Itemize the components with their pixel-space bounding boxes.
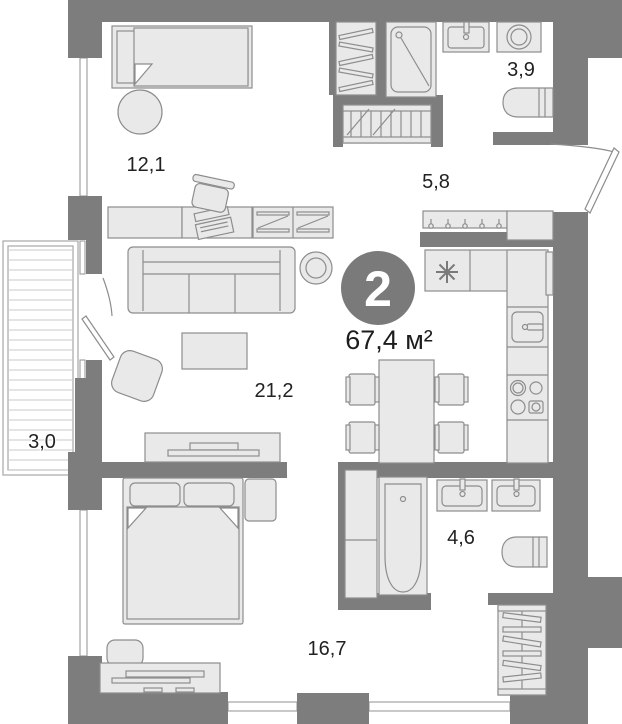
bedroom-chair [107, 640, 143, 666]
shower-cabin [386, 22, 436, 97]
balcony-door-arc [103, 278, 112, 316]
faucet-icon [460, 479, 465, 490]
pillow [130, 483, 180, 506]
room-label-bedroom-bottom: 16,7 [308, 638, 347, 660]
faucet-icon [514, 479, 519, 490]
wall-segment [546, 605, 588, 693]
wall-segment [86, 462, 287, 478]
wall-segment [75, 378, 102, 452]
wall-segment [553, 22, 588, 140]
wardrobe-shelves [253, 207, 333, 238]
dining-chair [435, 374, 468, 405]
double-bed [123, 478, 243, 624]
wall-segment [86, 240, 102, 274]
faucet-icon [464, 22, 469, 33]
wall-segment [431, 105, 443, 147]
window-bottom-right [369, 702, 510, 711]
dining-chair [435, 422, 468, 453]
dresser [100, 663, 220, 693]
hall-closet-rack [343, 105, 431, 143]
wall-segment [338, 462, 345, 610]
balcony-glazing-upper [80, 241, 85, 274]
dining-chair [346, 374, 379, 405]
wall-segment [345, 462, 588, 478]
dining-table [379, 360, 434, 463]
wall-segment [297, 693, 369, 724]
toilet-bottom [502, 537, 547, 567]
shower-head-icon [396, 32, 402, 38]
bathroom-cabinet [345, 470, 377, 598]
room-label-bedroom-top: 12,1 [127, 154, 166, 176]
shoe-bench [507, 211, 553, 240]
room-label-balcony: 3,0 [28, 431, 56, 453]
entrance-door [551, 144, 619, 213]
room-label-hallway: 5,8 [422, 171, 450, 193]
pouf [109, 348, 165, 404]
window-left-top [80, 58, 87, 196]
hall-wardrobe-strip [336, 22, 376, 95]
wall-segment [86, 360, 102, 378]
balcony-door-leaf [82, 316, 114, 360]
sofa [128, 247, 295, 313]
wall-segment [68, 692, 228, 724]
window-left-bottom [80, 510, 87, 656]
bathroom-top-sink [443, 22, 489, 52]
wall-segment [333, 105, 343, 147]
single-bed [112, 26, 252, 88]
toilet-top [503, 88, 553, 117]
wall-segment [376, 22, 386, 95]
room-label-bathroom-top: 3,9 [507, 59, 535, 81]
balcony-door [82, 278, 114, 360]
wall-segment [493, 132, 588, 145]
washing-machine [497, 22, 541, 52]
wall-segment [588, 22, 622, 58]
entrance-door-leaf [585, 148, 619, 213]
wall-segment [68, 452, 102, 510]
dining-chair [346, 422, 379, 453]
pillow [184, 483, 234, 506]
coffee-table [182, 333, 247, 369]
kitchen-sink [512, 312, 543, 342]
wall-segment [68, 196, 102, 240]
bathtub [379, 477, 427, 595]
wall-segment [329, 22, 336, 95]
area-badge: 2 67,4 м² [341, 251, 433, 355]
wall-segment [553, 212, 588, 577]
room-count: 2 [364, 261, 392, 317]
tv-stand [145, 433, 280, 462]
coat-hooks [423, 211, 507, 228]
hanger-wardrobe [498, 605, 546, 695]
window-bottom-left [228, 702, 297, 711]
bathroom-sink [492, 479, 540, 511]
faucet-icon [527, 324, 543, 330]
bathroom-sink [437, 479, 487, 511]
wall-segment [488, 593, 553, 605]
total-area: 67,4 м² [345, 325, 433, 355]
drain-icon [401, 497, 406, 502]
wall-segment [68, 22, 102, 58]
wall-segment [68, 0, 622, 22]
room-label-bathroom-bottom: 4,6 [447, 527, 475, 549]
entrance-door-arc [551, 144, 614, 152]
counter-top [108, 207, 182, 238]
room-label-living-kitchen: 21,2 [255, 380, 294, 402]
round-rug [118, 90, 162, 134]
tv-icon [190, 443, 238, 450]
side-table [300, 252, 332, 284]
nightstand [245, 479, 276, 521]
floor-plan: 12,1 3,9 5,8 21,2 3,0 4,6 16,7 2 67,4 м² [0, 0, 622, 724]
